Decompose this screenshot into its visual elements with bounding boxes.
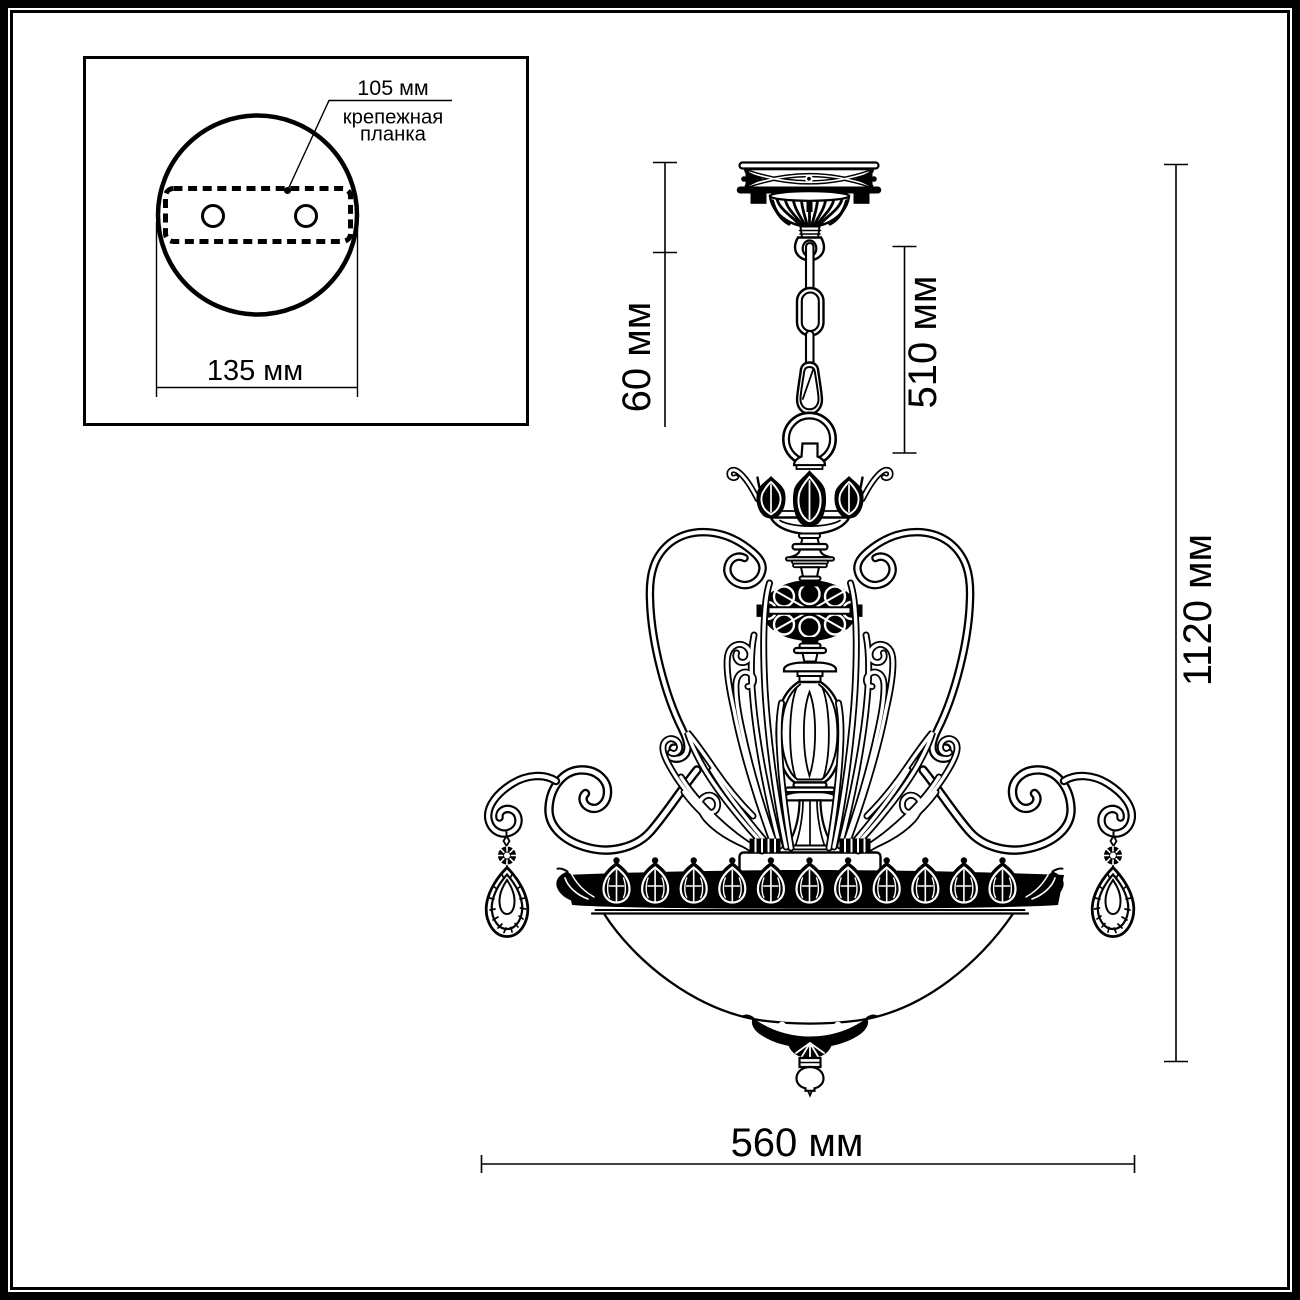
svg-text:135 мм: 135 мм [207,355,303,387]
svg-text:560 мм: 560 мм [731,1121,864,1165]
svg-text:510 мм: 510 мм [901,276,945,409]
svg-text:60 мм: 60 мм [615,302,659,413]
svg-text:1120 мм: 1120 мм [1176,534,1220,686]
svg-text:планка: планка [360,124,427,146]
svg-text:105 мм: 105 мм [357,76,428,100]
